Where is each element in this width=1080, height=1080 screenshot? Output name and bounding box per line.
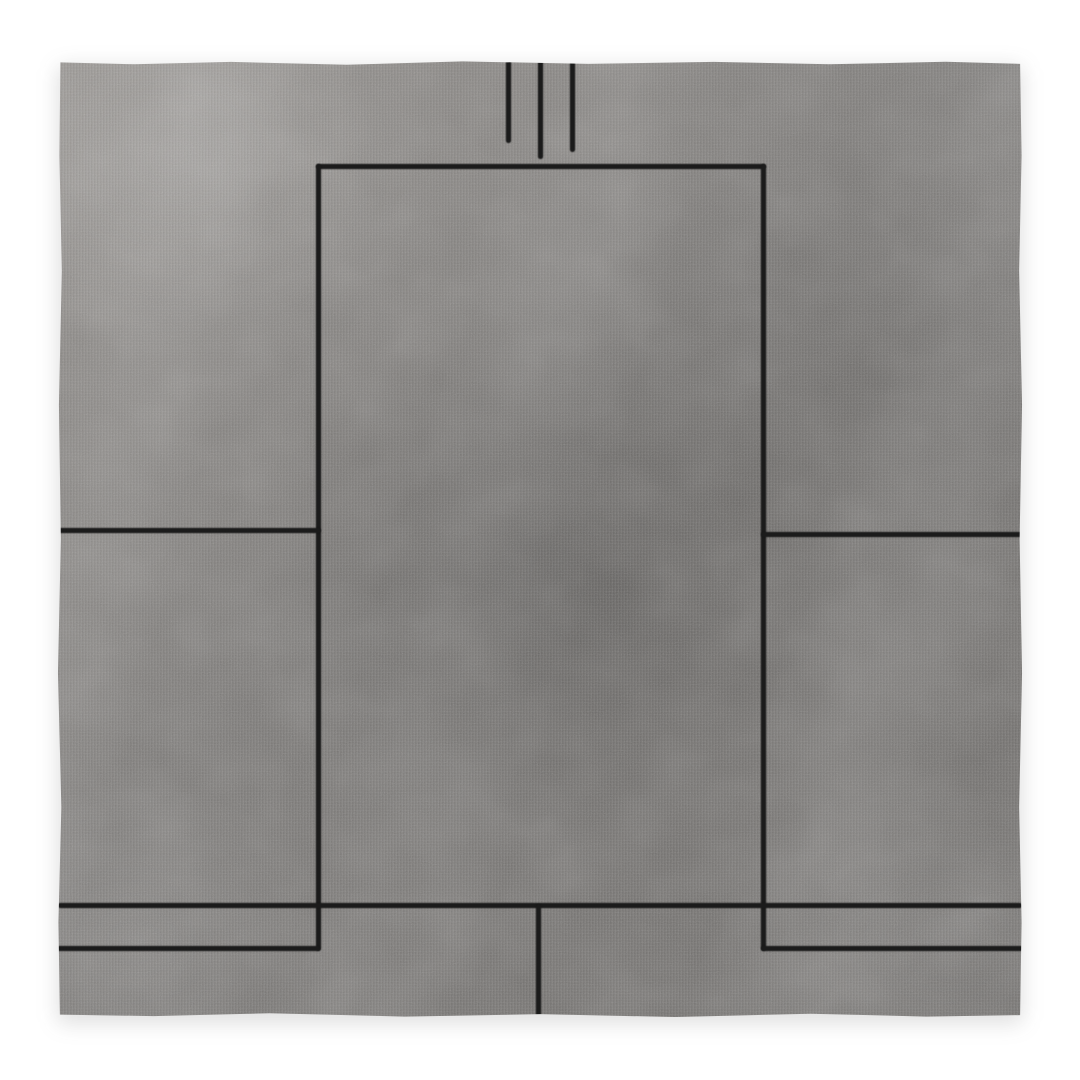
pattern-center-rect-top	[316, 164, 766, 169]
pattern-left-mid-horizontal	[57, 528, 321, 533]
pattern-bottom-center-vertical	[536, 904, 541, 1018]
pattern-center-rect-left	[316, 164, 321, 951]
pattern-top-vertical-left	[506, 60, 511, 143]
pattern-right-mid-horizontal	[761, 532, 1023, 537]
product-photo-canvas	[0, 0, 1080, 1080]
pattern-top-vertical-right	[570, 60, 575, 152]
pattern-bottom-right-horizontal	[761, 946, 1023, 951]
rug-pattern	[57, 60, 1023, 1018]
pattern-bottom-left-horizontal	[57, 946, 320, 951]
rug	[57, 60, 1023, 1018]
pattern-top-vertical-middle	[538, 60, 543, 159]
pattern-center-rect-right	[761, 164, 766, 951]
